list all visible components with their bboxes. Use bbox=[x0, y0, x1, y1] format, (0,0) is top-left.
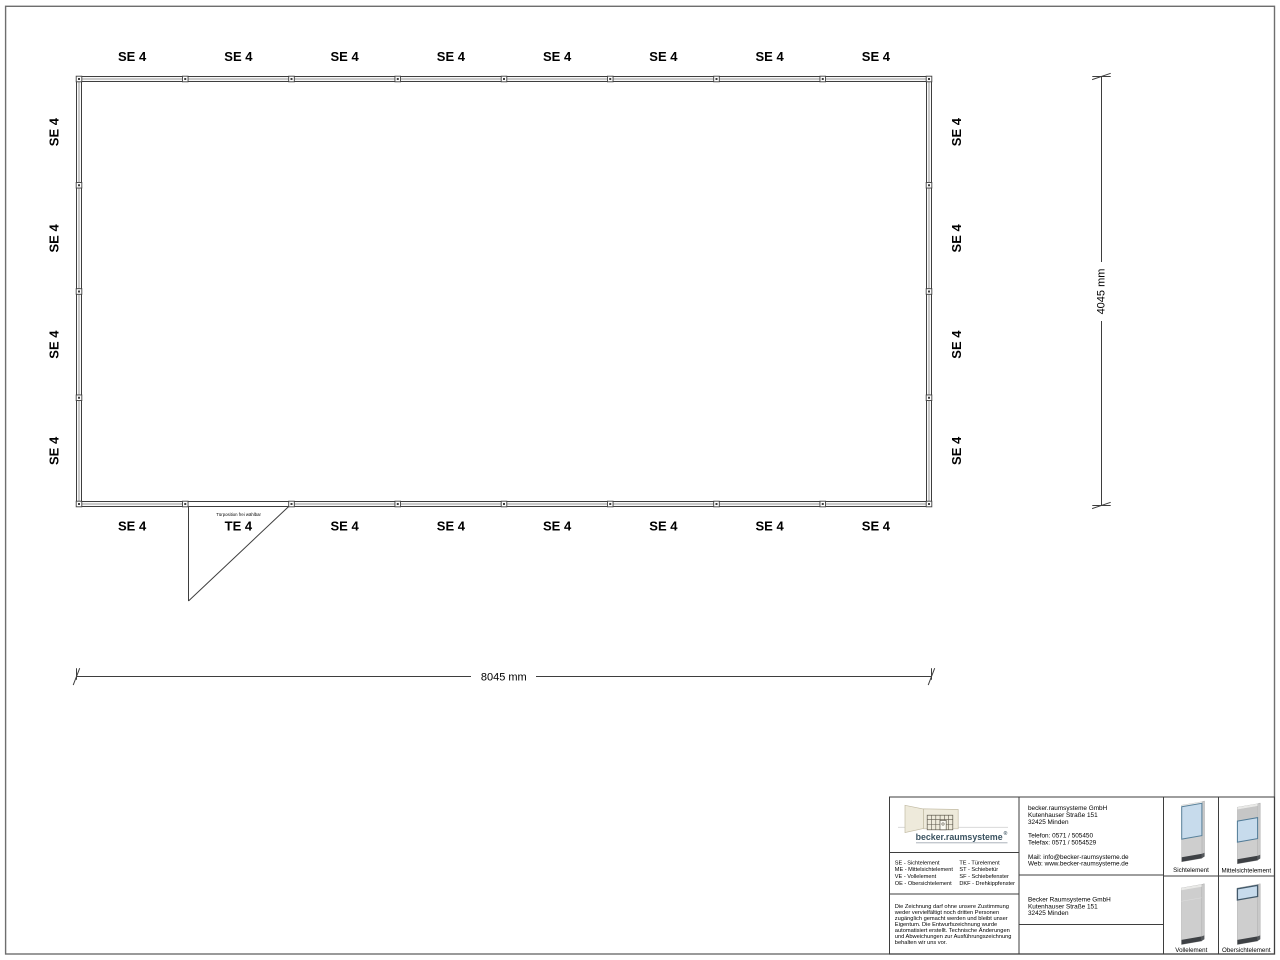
svg-text:SE 4: SE 4 bbox=[949, 436, 964, 465]
svg-text:SF - Schiebefenster: SF - Schiebefenster bbox=[959, 874, 1009, 880]
svg-text:Türposition frei wählbar: Türposition frei wählbar bbox=[216, 512, 261, 517]
svg-text:SE 4: SE 4 bbox=[46, 224, 61, 253]
svg-text:TE 4: TE 4 bbox=[225, 519, 253, 534]
svg-text:SE 4: SE 4 bbox=[118, 519, 147, 534]
svg-text:SE 4: SE 4 bbox=[543, 49, 572, 64]
svg-text:SE 4: SE 4 bbox=[756, 49, 785, 64]
svg-text:SE 4: SE 4 bbox=[756, 519, 785, 534]
svg-text:Web: www.becker-raumsysteme.de: Web: www.becker-raumsysteme.de bbox=[1028, 861, 1129, 868]
svg-text:Sichtelement: Sichtelement bbox=[1173, 867, 1209, 874]
svg-text:SE 4: SE 4 bbox=[862, 49, 891, 64]
svg-text:SE 4: SE 4 bbox=[949, 224, 964, 253]
svg-text:SE 4: SE 4 bbox=[118, 49, 147, 64]
svg-text:SE 4: SE 4 bbox=[862, 519, 891, 534]
svg-text:automatisiert erstellt. Techni: automatisiert erstellt. Technische Änder… bbox=[895, 927, 1010, 934]
svg-text:SE 4: SE 4 bbox=[46, 436, 61, 465]
svg-text:32425 Minden: 32425 Minden bbox=[1028, 910, 1069, 917]
svg-text:SE 4: SE 4 bbox=[331, 519, 360, 534]
svg-text:VE - Vollelement: VE - Vollelement bbox=[895, 874, 937, 880]
svg-text:SE 4: SE 4 bbox=[331, 49, 360, 64]
svg-text:Vollelement: Vollelement bbox=[1175, 947, 1207, 954]
svg-text:SE 4: SE 4 bbox=[649, 519, 678, 534]
svg-text:becker.raumsysteme: becker.raumsysteme bbox=[916, 832, 1003, 842]
svg-text:SE - Sichtelement: SE - Sichtelement bbox=[895, 860, 940, 866]
svg-text:SE 4: SE 4 bbox=[437, 49, 466, 64]
svg-text:behalten wir uns vor.: behalten wir uns vor. bbox=[895, 940, 948, 946]
svg-text:Becker Raumsysteme GmbH: Becker Raumsysteme GmbH bbox=[1028, 896, 1111, 903]
svg-text:TE - Türelement: TE - Türelement bbox=[959, 860, 1000, 866]
svg-text:SE 4: SE 4 bbox=[649, 49, 678, 64]
svg-text:Obersichtelement: Obersichtelement bbox=[1222, 947, 1271, 954]
svg-text:Telefax: 0571 / 5054529: Telefax: 0571 / 5054529 bbox=[1028, 840, 1097, 847]
svg-text:Mittelsichtelement: Mittelsichtelement bbox=[1222, 867, 1272, 874]
svg-text:OE - Obersichtelement: OE - Obersichtelement bbox=[895, 881, 952, 887]
svg-text:32425 Minden: 32425 Minden bbox=[1028, 819, 1069, 826]
svg-text:SE 4: SE 4 bbox=[949, 117, 964, 146]
svg-text:ME - Mittelsichtelement: ME - Mittelsichtelement bbox=[895, 867, 954, 873]
svg-text:4045 mm: 4045 mm bbox=[1096, 269, 1108, 315]
svg-text:SE 4: SE 4 bbox=[949, 330, 964, 359]
svg-text:SE 4: SE 4 bbox=[46, 330, 61, 359]
svg-text:DKF - Drehkippfenster: DKF - Drehkippfenster bbox=[959, 881, 1015, 887]
svg-text:SE 4: SE 4 bbox=[224, 49, 253, 64]
svg-text:8045 mm: 8045 mm bbox=[481, 672, 527, 684]
svg-text:ST - Schiebetür: ST - Schiebetür bbox=[959, 867, 998, 873]
svg-text:®: ® bbox=[1004, 830, 1008, 837]
svg-text:SE 4: SE 4 bbox=[543, 519, 572, 534]
svg-text:SE 4: SE 4 bbox=[46, 117, 61, 146]
svg-text:SE 4: SE 4 bbox=[437, 519, 466, 534]
